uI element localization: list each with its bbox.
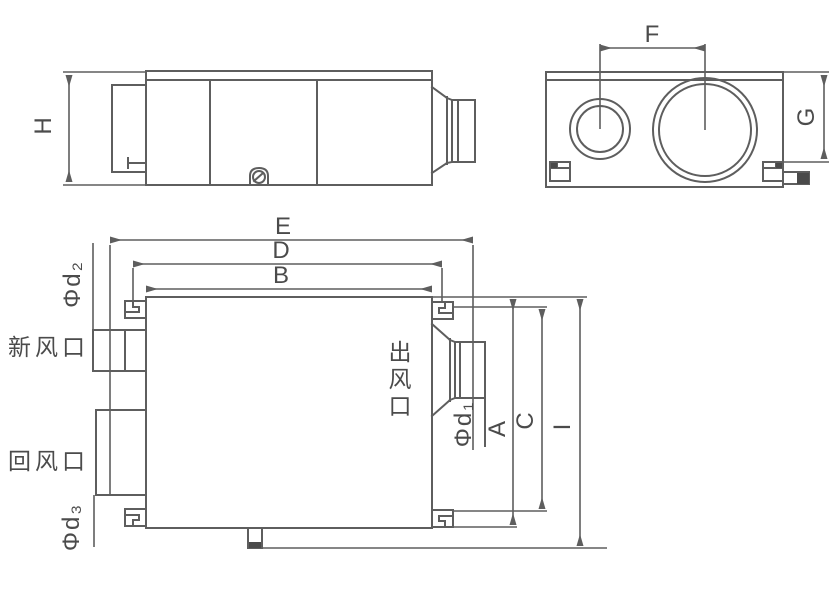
i-dimension: I	[549, 299, 580, 546]
mounting-bracket-top-left	[125, 301, 146, 318]
plan-view: E D B A C I	[8, 213, 607, 551]
side-duct-panel	[112, 85, 146, 172]
dim-label-a: A	[484, 421, 511, 437]
b-dimension: B	[146, 262, 432, 289]
technical-drawing-canvas: H F G	[0, 0, 829, 601]
small-round-port	[570, 44, 630, 159]
outlet-char-3: 口	[389, 393, 412, 419]
outlet-char-1: 出	[389, 339, 412, 365]
dim-label-b: B	[273, 262, 289, 289]
d2-diameter-label: Φd₂	[59, 243, 93, 330]
large-round-port	[653, 44, 757, 182]
c-dimension: C	[512, 309, 542, 509]
dim-label-i: I	[549, 424, 576, 431]
e-dimension: E	[110, 213, 473, 240]
port-label-return-air: 回风口	[8, 448, 89, 474]
side-view: H	[30, 71, 475, 185]
return-air-duct	[96, 410, 146, 495]
dim-label-c: C	[512, 412, 539, 429]
fresh-air-duct	[93, 330, 146, 371]
dim-label-g: G	[793, 108, 820, 127]
end-view-outline	[546, 72, 783, 187]
dim-label-f: F	[645, 21, 660, 48]
end-side-tab	[783, 172, 809, 184]
dim-label-h: H	[30, 117, 57, 134]
d1-diameter-label: Φd₁	[450, 401, 477, 448]
side-view-outline	[146, 71, 432, 185]
diameter-label-d1: Φd₁	[450, 401, 477, 448]
end-foot-bracket-left	[550, 162, 570, 181]
port-label-fresh-air: 新风口	[8, 334, 89, 360]
screw-cap-icon	[250, 168, 268, 185]
a-dimension: A	[484, 299, 513, 525]
outlet-char-2: 风	[389, 366, 412, 392]
plan-bottom-tab	[248, 528, 607, 548]
dim-label-e: E	[275, 213, 291, 240]
diameter-label-d2: Φd₂	[59, 260, 86, 308]
mounting-bracket-bottom-right	[432, 510, 453, 527]
side-outlet-nozzle	[432, 87, 475, 173]
ventilation-unit-drawing: H F G	[0, 0, 829, 601]
end-foot-bracket-right	[763, 162, 783, 181]
mounting-bracket-bottom-left	[125, 509, 146, 526]
dim-label-d: D	[272, 237, 289, 264]
g-dimension: G	[783, 72, 829, 162]
diameter-label-d3: Φd₃	[58, 503, 85, 551]
port-label-outlet: 出 风 口	[389, 339, 412, 419]
mounting-bracket-top-right	[432, 302, 453, 319]
end-view: F G	[546, 21, 829, 187]
f-dimension: F	[600, 21, 705, 48]
d3-diameter-label: Φd₃	[58, 495, 94, 551]
